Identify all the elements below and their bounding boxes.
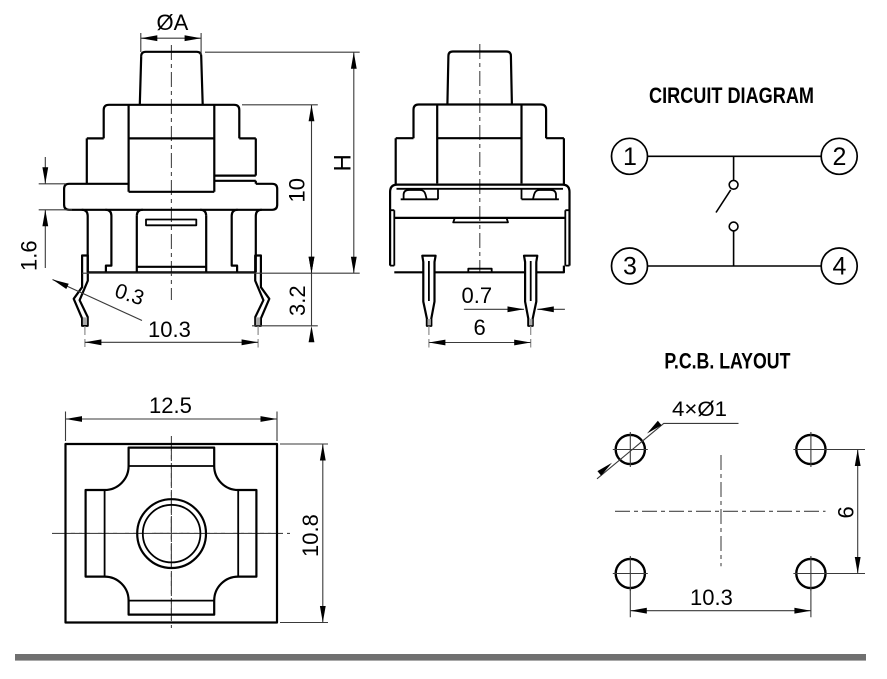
svg-text:6: 6 [474,315,486,340]
svg-text:4×Ø1: 4×Ø1 [672,398,727,421]
svg-text:1.6: 1.6 [17,240,42,271]
svg-text:6: 6 [834,506,859,518]
svg-text:10.8: 10.8 [298,514,323,557]
svg-text:12.5: 12.5 [149,393,192,418]
svg-text:4: 4 [833,253,847,281]
svg-text:0.3: 0.3 [112,279,147,310]
svg-text:P.C.B. LAYOUT: P.C.B. LAYOUT [664,349,790,374]
svg-text:1: 1 [623,143,637,171]
svg-text:10.3: 10.3 [690,585,733,610]
svg-text:H: H [330,154,357,171]
svg-text:2: 2 [833,143,847,171]
svg-text:ØA: ØA [157,10,189,35]
svg-text:10: 10 [285,178,310,202]
svg-text:CIRCUIT DIAGRAM: CIRCUIT DIAGRAM [649,83,814,108]
svg-text:3.2: 3.2 [285,285,310,316]
svg-text:10.3: 10.3 [148,317,191,342]
svg-text:0.7: 0.7 [462,283,493,308]
svg-text:3: 3 [623,253,637,281]
